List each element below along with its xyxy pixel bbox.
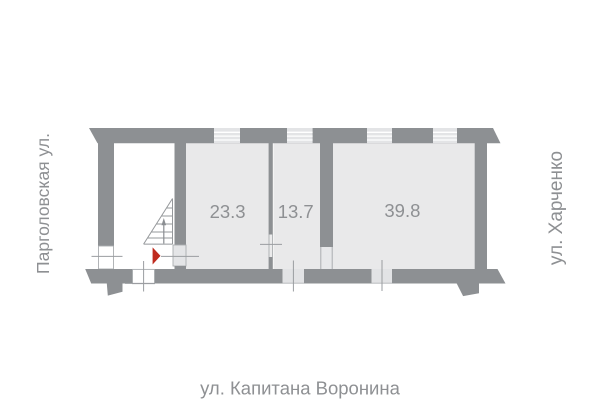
svg-text:23.3: 23.3 [210, 201, 246, 222]
svg-text:13.7: 13.7 [278, 201, 314, 222]
svg-text:39.8: 39.8 [384, 200, 420, 221]
svg-text:Парголовская ул.: Парголовская ул. [33, 133, 53, 274]
svg-text:ул. Капитана Воронина: ул. Капитана Воронина [200, 378, 401, 399]
svg-text:ул. Харченко: ул. Харченко [546, 151, 567, 265]
